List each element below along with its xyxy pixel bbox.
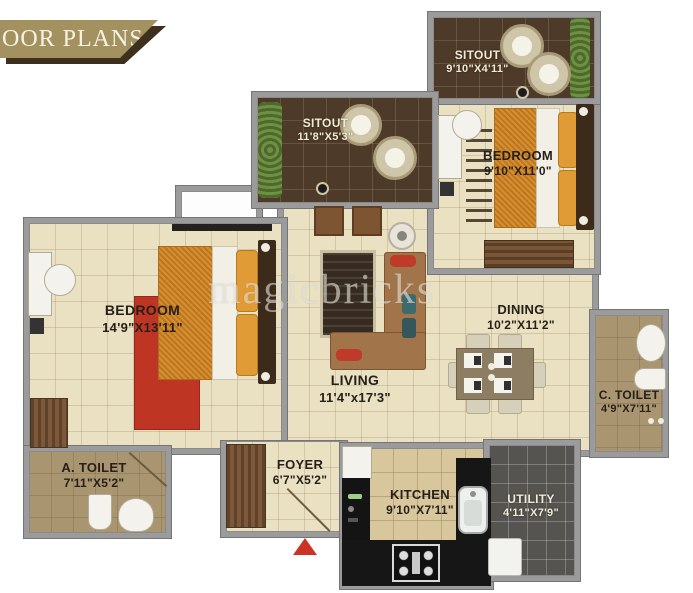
door-knob (648, 418, 654, 424)
room-name: LIVING (331, 372, 379, 388)
room-dims: 6'7"X5'2" (250, 473, 350, 488)
dressing-stool (44, 264, 76, 296)
banner-text: OOR PLANS (0, 26, 144, 52)
washbasin (118, 498, 154, 532)
door-knob (516, 86, 529, 99)
room-name: KITCHEN (390, 487, 450, 502)
bedroom-left-pillow (236, 314, 258, 376)
label-foyer: FOYER 6'7"X5'2" (250, 457, 350, 488)
living-rug (320, 250, 376, 338)
fridge-detail (348, 518, 358, 522)
room-dims: 7'11"X5'2" (38, 476, 150, 491)
label-dining: DINING 10'2"X11'2" (462, 302, 580, 333)
headboard-knob (579, 107, 588, 116)
room-name: DINING (497, 302, 544, 317)
plate (504, 381, 511, 390)
bedroom-left-dresser (30, 398, 68, 448)
room-name: BEDROOM (483, 148, 553, 163)
room-dims: 14'9"X13'11" (55, 320, 230, 336)
label-sitout-top: SITOUT 9'10"X4'11" (425, 48, 530, 77)
fridge-handle (348, 494, 362, 499)
toilet (634, 368, 666, 390)
round-chair-cushion (385, 148, 405, 168)
round-chair-cushion (539, 64, 559, 84)
room-dims: 9'10"X4'11" (425, 63, 530, 77)
plate (504, 356, 511, 365)
room-dims: 10'2"X11'2" (462, 318, 580, 333)
room-name: SITOUT (455, 48, 501, 62)
washing-machine (488, 538, 522, 576)
toilet (88, 494, 112, 530)
sofa-cushion-teal (402, 318, 416, 338)
door-knob (658, 418, 664, 424)
room-name: A. TOILET (61, 460, 126, 475)
headboard-knob (261, 243, 270, 252)
room-name: UTILITY (507, 492, 554, 506)
headboard-knob (579, 216, 588, 225)
label-bedroom-left: BEDROOM 14'9"X13'11" (55, 302, 230, 336)
sofa-cushion-red (336, 349, 362, 361)
label-bedroom-right: BEDROOM 9'10"X11'0" (448, 148, 588, 179)
ottoman (314, 206, 344, 236)
ottoman (352, 206, 382, 236)
side-unit (30, 318, 44, 334)
table-centerpiece (488, 363, 495, 370)
dressing-mirror (452, 110, 482, 140)
bedroom-right-wardrobe (484, 240, 574, 268)
label-c-toilet: C. TOILET 4'9"X7'11" (592, 388, 666, 417)
room-dims: 4'9"X7'11" (592, 403, 666, 417)
sofa-cushion-teal (402, 294, 416, 314)
sofa-cushion-red (390, 255, 416, 267)
headboard-knob (261, 372, 270, 381)
room-name: FOYER (277, 457, 323, 472)
label-a-toilet: A. TOILET 7'11"X5'2" (38, 460, 150, 491)
plate (474, 381, 481, 390)
room-dims: 9'10"X7'11" (368, 503, 472, 518)
label-living: LIVING 11'4"x17'3" (295, 372, 415, 406)
window-bar (172, 224, 272, 231)
room-dims: 11'8"X5'3" (268, 131, 383, 145)
washbasin (636, 324, 666, 362)
bedroom-left-headboard (258, 240, 276, 384)
door-knob (316, 182, 329, 195)
table-centerpiece (488, 374, 495, 381)
room-name: BEDROOM (105, 302, 180, 318)
room-dims: 9'10"X11'0" (448, 164, 588, 179)
stove-center (412, 552, 420, 574)
side-unit (440, 182, 454, 196)
label-utility: UTILITY 4'11"X7'9" (486, 492, 576, 521)
room-name: SITOUT (303, 116, 349, 130)
label-kitchen: KITCHEN 9'10"X7'11" (368, 487, 472, 518)
plate (474, 356, 481, 365)
round-table-center (397, 231, 407, 241)
plant (570, 18, 590, 98)
label-sitout-left: SITOUT 11'8"X5'3" (268, 116, 383, 145)
room-dims: 11'4"x17'3" (295, 390, 415, 406)
floor-plan-canvas: OOR PLANS (0, 0, 693, 593)
entrance-arrow (293, 538, 317, 555)
bedroom-left-pillow (236, 250, 258, 312)
room-name: C. TOILET (599, 388, 659, 402)
room-dims: 4'11"X7'9" (486, 507, 576, 521)
fridge-detail (348, 506, 354, 512)
